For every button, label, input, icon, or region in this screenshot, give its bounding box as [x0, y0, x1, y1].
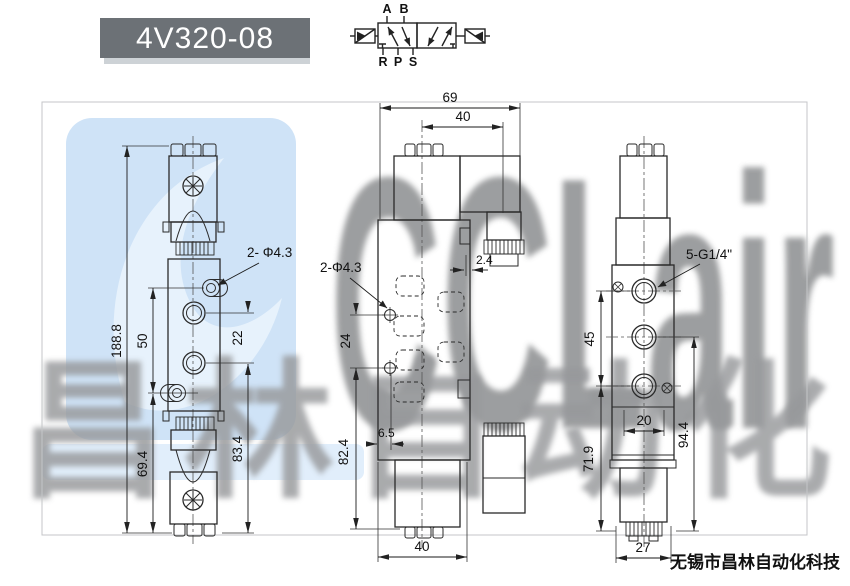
footer-company: 无锡市昌林自动化科技: [669, 552, 841, 572]
dim-overall-depth-label: 69: [442, 90, 457, 105]
ports-callout-label: 5-G1/4": [686, 247, 732, 262]
dim-port-width-label: 20: [636, 413, 651, 428]
dim-edge-to-hole-label: 6.5: [378, 426, 395, 440]
dim-center-to-coil-label: 40: [455, 109, 470, 124]
dim-lower-height-label: 69.4: [135, 450, 150, 477]
port-label-a: A: [382, 2, 391, 16]
dim-total-height-label: 188.8: [109, 324, 124, 358]
dim-port-spacing-label: 22: [230, 330, 245, 345]
dim-lower-total-label: 94.4: [676, 421, 691, 448]
valve-schematic-symbol: A B R P S: [350, 2, 490, 69]
model-number: 4V320-08: [136, 22, 274, 55]
title-block: 4V320-08: [100, 18, 310, 64]
mount-holes-callout-side: 2-Φ4.3: [320, 260, 362, 275]
technical-drawing-canvas: CCLair 昌林自动化 4V320-08 A B R P: [0, 0, 850, 586]
dim-hole-spacing-side-label: 24: [338, 333, 353, 349]
dim-step-label: 2.4: [476, 253, 493, 267]
port-label-b: B: [399, 2, 408, 16]
mount-holes-callout-front: 2- Φ4.3: [247, 245, 292, 260]
dim-lower-height-end-label: 71.9: [581, 446, 596, 472]
dim-port-span-label: 45: [582, 331, 597, 346]
port-label-s: S: [409, 55, 417, 69]
dim-base-width-label: 27: [635, 540, 650, 555]
dim-hole-spacing-label: 50: [135, 333, 150, 348]
title-block-shadow: [104, 58, 310, 64]
port-label-p: P: [394, 55, 402, 69]
catalog-page: CCLair 昌林自动化 4V320-08 A B R P: [0, 0, 850, 586]
watermark-chinese-text: 昌林自动化: [18, 348, 848, 516]
port-label-r: R: [378, 55, 387, 69]
dim-base-depth-label: 40: [414, 539, 429, 554]
dim-port-to-base-label: 83.4: [230, 435, 245, 462]
dim-body-height-label: 82.4: [336, 438, 351, 465]
